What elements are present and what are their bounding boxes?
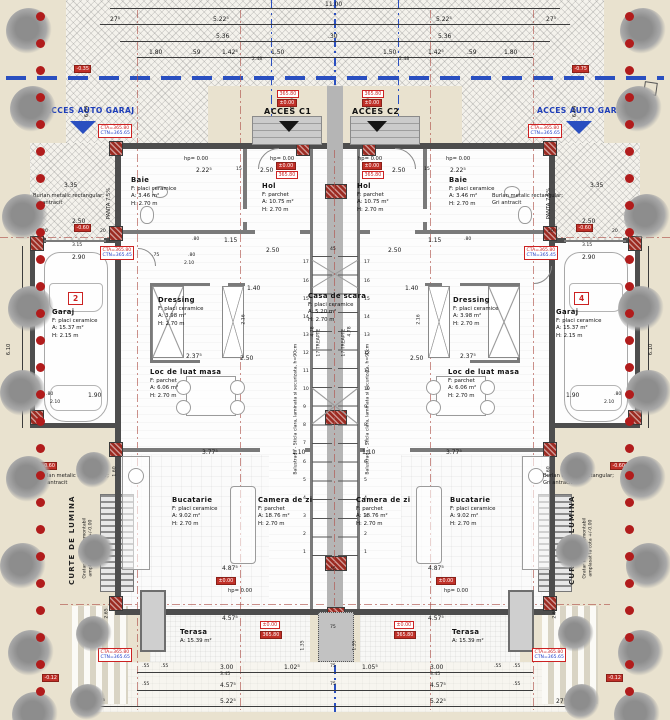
room-name: Baie bbox=[449, 176, 494, 186]
room-area: A: 6.06 m² bbox=[150, 385, 221, 393]
dim-label: 3.45 bbox=[220, 673, 230, 678]
dim-label: 27⁵ bbox=[110, 17, 120, 23]
cta-ctn-box: CTA=365.80 CTN=365.65 bbox=[528, 124, 562, 138]
bollard-dot bbox=[625, 282, 634, 291]
dim-label: 20 bbox=[612, 230, 618, 235]
dim-label: 4.87⁵ bbox=[428, 566, 444, 572]
bollard-dot bbox=[36, 93, 45, 102]
room-name: Casa de scara bbox=[308, 292, 366, 302]
dim-label: 2.10 bbox=[604, 401, 614, 406]
room-height: H: 2.70 m bbox=[450, 521, 495, 529]
room-name: Baie bbox=[131, 176, 176, 186]
dim-label: 2.50 bbox=[260, 168, 273, 174]
room-height: H: 2.70 m bbox=[131, 201, 176, 209]
dim-label: 4.57⁵ bbox=[428, 616, 444, 622]
room-label: Terasa A: 15.39 m² bbox=[180, 628, 212, 645]
tree-icon bbox=[8, 630, 54, 676]
partition bbox=[410, 448, 549, 452]
dim-label: .55 bbox=[513, 683, 520, 688]
dim-label: 2.16 bbox=[242, 314, 247, 324]
step-number: 12 bbox=[303, 352, 309, 357]
room-name: Garaj bbox=[52, 308, 97, 318]
dim-label: 17 TREAPTE bbox=[342, 329, 347, 357]
room-area: A: 15.37 m² bbox=[556, 325, 601, 333]
bollard-dot bbox=[36, 660, 45, 669]
chair bbox=[426, 380, 441, 395]
dim-label: CURTE DE LUMINA bbox=[69, 495, 76, 585]
room-name: Hol bbox=[357, 182, 389, 192]
tree-icon bbox=[6, 8, 52, 54]
unit-number: 2 bbox=[68, 292, 83, 305]
partition bbox=[360, 230, 370, 234]
elevation-box: 365.80 bbox=[276, 171, 298, 179]
dim-line bbox=[100, 706, 570, 707]
bollard-dot bbox=[625, 255, 634, 264]
dim-label: 3.45 bbox=[430, 673, 440, 678]
dim-label: 4.57⁵ bbox=[220, 683, 236, 689]
chair bbox=[176, 400, 191, 415]
bollard-dot bbox=[36, 120, 45, 129]
column bbox=[543, 442, 557, 457]
dim-label: 2.48 bbox=[399, 58, 409, 63]
dim-label: 1.90 bbox=[566, 393, 579, 399]
elevation-box: 365.80 bbox=[394, 631, 416, 639]
bollard-dot bbox=[625, 471, 634, 480]
elevation-box: ±0.00 bbox=[436, 577, 456, 585]
dim-line bbox=[120, 41, 550, 42]
room-area: A: 3.98 m² bbox=[158, 313, 203, 321]
room-floor-finish: F: parchet bbox=[357, 192, 389, 200]
dim-label: 15 bbox=[424, 168, 430, 173]
room-label: Bucatarie F: placi ceramice A: 9.02 m² H… bbox=[172, 496, 217, 528]
room-floor-finish: F: parchet bbox=[150, 378, 221, 386]
step-number: 4 bbox=[364, 497, 367, 502]
room-floor-finish: F: placi ceramice bbox=[52, 318, 97, 326]
bollard-dot bbox=[36, 309, 45, 318]
bollard-dot bbox=[36, 417, 45, 426]
dim-label: 1.90 bbox=[88, 393, 101, 399]
dim-label: hp= 0.00 bbox=[444, 589, 468, 594]
elevation-box: 365.80 bbox=[362, 171, 384, 179]
room-name: Terasa bbox=[180, 628, 212, 638]
bollard-dot bbox=[36, 174, 45, 183]
dim-line bbox=[137, 672, 533, 673]
bollard-dot bbox=[36, 363, 45, 372]
step-number: 13 bbox=[303, 334, 309, 339]
dim-label: 2.65 bbox=[105, 608, 110, 618]
dim-label: .55 bbox=[142, 665, 149, 670]
room-floor-finish: F: placi ceramice bbox=[158, 306, 203, 314]
dim-label: 3.00 bbox=[430, 665, 443, 671]
dim-label: 1.02⁵ bbox=[284, 665, 300, 671]
column bbox=[109, 226, 123, 241]
entry-steps-c1[interactable] bbox=[252, 116, 322, 145]
dim-label: 20 bbox=[548, 230, 554, 235]
dim-label: 1.42⁵ bbox=[222, 50, 238, 56]
room-label: Loc de luat masa F: parchet A: 6.06 m² H… bbox=[150, 368, 221, 400]
step-number: 1 bbox=[303, 551, 306, 556]
dim-label: 1.80 bbox=[504, 50, 517, 56]
dim-label: 4.87⁵ bbox=[222, 566, 238, 572]
step-number: 14 bbox=[364, 316, 370, 321]
step-number: 7 bbox=[364, 442, 367, 447]
room-area: A: 3.46 m² bbox=[131, 193, 176, 201]
room-floor-finish: F: parchet bbox=[262, 192, 294, 200]
dim-label: 3.77⁵ bbox=[202, 450, 218, 456]
dim-label: .75 bbox=[152, 254, 159, 259]
bollard-dot bbox=[36, 201, 45, 210]
room-floor-finish: F: parchet bbox=[448, 378, 519, 386]
partition bbox=[150, 360, 200, 363]
partition bbox=[243, 222, 247, 234]
dim-label: .55 bbox=[494, 665, 501, 670]
bollard-dot bbox=[625, 201, 634, 210]
elevation-box: ±0.00 bbox=[394, 621, 414, 629]
dim-label: 4.57⁵ bbox=[430, 683, 446, 689]
dim-label: 2.16 bbox=[417, 314, 422, 324]
elevation-box: 365.80 bbox=[277, 90, 299, 98]
garage-door-left[interactable] bbox=[44, 240, 106, 242]
tree-icon bbox=[76, 616, 112, 652]
room-height: H: 2.70 m bbox=[448, 393, 519, 401]
room-area: A: 10.75 m² bbox=[262, 199, 294, 207]
dim-label: 2.10 bbox=[50, 401, 60, 406]
bollard-dot bbox=[625, 120, 634, 129]
column bbox=[109, 442, 123, 457]
dim-label: 2.48 bbox=[252, 58, 262, 63]
dim-label: 20 bbox=[100, 230, 106, 235]
bollard-dot bbox=[36, 633, 45, 642]
dim-label: 3.35 bbox=[590, 183, 603, 189]
dim-label: .80 bbox=[192, 238, 199, 243]
partition bbox=[121, 230, 255, 234]
acces-auto-garaj-right-label: ACCES AUTO GARAJ bbox=[537, 106, 626, 115]
bollard-dot bbox=[36, 39, 45, 48]
dim-label: 2.50 bbox=[392, 168, 405, 174]
dim-label: 5.36 bbox=[216, 34, 229, 40]
elevation-box: -0.75 bbox=[572, 65, 589, 73]
room-floor-finish: F: parchet bbox=[258, 506, 313, 514]
step-number: 12 bbox=[364, 352, 370, 357]
elevation-box: ±0.00 bbox=[216, 577, 236, 585]
room-name: Dressing bbox=[453, 296, 498, 306]
dim-label: Gri antracit bbox=[492, 201, 521, 206]
room-label: Garaj F: placi ceramice A: 15.37 m² H: 2… bbox=[556, 308, 601, 340]
room-floor-finish: F: parchet bbox=[356, 506, 411, 514]
bollard-dot bbox=[36, 228, 45, 237]
dim-label: 11.00 bbox=[325, 2, 342, 8]
elevation-box: ±0.00 bbox=[362, 99, 382, 107]
dim-label: 3.15 bbox=[582, 244, 592, 249]
terrace-post bbox=[508, 590, 534, 652]
bollard-dot bbox=[36, 255, 45, 264]
room-name: Hol bbox=[262, 182, 294, 192]
chair bbox=[230, 380, 245, 395]
step-number: 10 bbox=[364, 388, 370, 393]
room-label: Casa de scara F: placi ceramice A: 5.20 … bbox=[308, 292, 366, 324]
bollard-dot bbox=[36, 498, 45, 507]
bollard-dot bbox=[625, 336, 634, 345]
terrace-post bbox=[140, 590, 166, 652]
dim-label: 2.10 bbox=[184, 262, 194, 267]
elevation-box: ±0.00 bbox=[260, 621, 280, 629]
bollard-dot bbox=[36, 147, 45, 156]
column bbox=[325, 556, 347, 571]
room-height: H: 2.70 m bbox=[453, 321, 498, 329]
dim-line bbox=[110, 8, 560, 9]
bollard-dot bbox=[625, 174, 634, 183]
stair-break-mark bbox=[312, 260, 358, 288]
room-label: Hol F: parchet A: 10.75 m² H: 2.70 m bbox=[357, 182, 389, 214]
partition bbox=[423, 222, 427, 234]
room-height: H: 2.70 m bbox=[172, 521, 217, 529]
dim-label: 6.64 bbox=[85, 106, 90, 118]
dim-label: hp= 0.00 bbox=[184, 157, 208, 162]
bollard-dot bbox=[36, 12, 45, 21]
dim-label: 1.35 bbox=[353, 640, 358, 650]
dim-label: 3.15 bbox=[72, 244, 82, 249]
room-label: Baie F: placi ceramice A: 3.46 m² H: 2.7… bbox=[131, 176, 176, 208]
room-label: Dressing F: placi ceramice A: 3.98 m² H:… bbox=[158, 296, 203, 328]
ctn-value: CTN=365.65 bbox=[531, 131, 560, 137]
room-area: A: 3.98 m² bbox=[453, 313, 498, 321]
partition bbox=[470, 360, 520, 363]
step-number: 15 bbox=[303, 298, 309, 303]
room-area: A: 9.02 m² bbox=[172, 513, 217, 521]
cta-ctn-box: CTA=365.80 CTN=365.45 bbox=[524, 246, 558, 260]
tree-icon bbox=[70, 684, 106, 720]
dim-label: 1.15 bbox=[428, 238, 441, 244]
step-number: 7 bbox=[303, 442, 306, 447]
ctn-value: CTN=365.65 bbox=[101, 655, 130, 661]
dim-label: hp= 0.00 bbox=[228, 589, 252, 594]
dim-label: 2.65 bbox=[553, 608, 558, 618]
dim-label: 2.50 bbox=[410, 356, 423, 362]
dim-label: .80 bbox=[464, 238, 471, 243]
tree-icon bbox=[560, 452, 596, 488]
step-number: 1 bbox=[364, 551, 367, 556]
room-floor-finish: F: placi ceramice bbox=[308, 302, 366, 310]
tree-icon bbox=[12, 692, 58, 720]
sofa-right bbox=[416, 486, 442, 564]
step-number: 2 bbox=[303, 533, 306, 538]
grid-axis bbox=[430, 10, 431, 710]
room-label: Loc de luat masa F: parchet A: 6.06 m² H… bbox=[448, 368, 519, 400]
room-label: Garaj F: placi ceramice A: 15.37 m² H: 2… bbox=[52, 308, 97, 340]
bollard-dot bbox=[625, 363, 634, 372]
tree-icon bbox=[76, 452, 112, 488]
partition bbox=[243, 149, 247, 209]
room-name: Bucatarie bbox=[450, 496, 495, 506]
dim-label: 2.90 bbox=[582, 255, 595, 261]
dim-label: 75 bbox=[330, 665, 336, 670]
elevation-box: -0.12 bbox=[42, 674, 59, 682]
room-area: A: 5.20 m² bbox=[308, 309, 366, 317]
room-floor-finish: F: placi ceramice bbox=[172, 506, 217, 514]
dim-label: Burlan metalic rectangular; bbox=[33, 194, 104, 199]
elevation-box: ±0.00 bbox=[276, 162, 296, 170]
dim-label: .59 bbox=[191, 50, 201, 56]
wall bbox=[115, 143, 121, 615]
chair bbox=[230, 400, 245, 415]
tree-icon bbox=[8, 286, 54, 332]
room-height: H: 2.70 m bbox=[262, 207, 294, 215]
dim-label: 5.22⁵ bbox=[436, 17, 452, 23]
step-number: 8 bbox=[303, 424, 306, 429]
step-number: 9 bbox=[364, 406, 367, 411]
dim-label: 4.78 bbox=[311, 326, 316, 336]
sink bbox=[528, 468, 544, 484]
step-number: 16 bbox=[303, 280, 309, 285]
garage-door-right[interactable] bbox=[564, 240, 626, 242]
room-name: Garaj bbox=[556, 308, 601, 318]
room-area: A: 10.75 m² bbox=[357, 199, 389, 207]
dim-label: Burlan metalic rectangular; bbox=[492, 194, 563, 199]
toilet bbox=[140, 206, 154, 224]
bollard-dot bbox=[625, 417, 634, 426]
partition bbox=[423, 149, 427, 209]
room-floor-finish: F: placi ceramice bbox=[556, 318, 601, 326]
dim-label: .80 bbox=[188, 254, 195, 259]
step-number: 6 bbox=[303, 461, 306, 466]
dim-label: 2.50 bbox=[388, 248, 401, 254]
chair bbox=[480, 400, 495, 415]
dim-label: .30 bbox=[328, 34, 338, 40]
cta-ctn-box: CTA=365.80 CTN=365.65 bbox=[98, 648, 132, 662]
dim-line bbox=[137, 57, 533, 58]
room-height: H: 2.15 m bbox=[556, 333, 601, 341]
room-height: H: 2.70 m bbox=[449, 201, 494, 209]
dim-label: 1.80 bbox=[149, 50, 162, 56]
chair bbox=[426, 400, 441, 415]
bollard-dot bbox=[625, 228, 634, 237]
acces-c2-label: ACCES C2 bbox=[352, 107, 399, 116]
room-area: A: 15.39 m² bbox=[452, 638, 484, 646]
step-number: 2 bbox=[364, 533, 367, 538]
bollard-dot bbox=[625, 606, 634, 615]
step-number: 17 bbox=[303, 261, 309, 266]
step-number: 10 bbox=[303, 388, 309, 393]
dim-label: 45 bbox=[330, 568, 336, 573]
step-number: 13 bbox=[364, 334, 370, 339]
room-height: H: 2.70 m bbox=[308, 317, 366, 325]
dim-label: 3.77⁵ bbox=[446, 450, 462, 456]
step-number: 15 bbox=[364, 298, 370, 303]
ctn-value: CTN=365.65 bbox=[101, 131, 130, 137]
entry-steps-c2[interactable] bbox=[350, 116, 420, 145]
room-name: Loc de luat masa bbox=[448, 368, 519, 378]
dim-label: 2.37⁵ bbox=[186, 354, 202, 360]
dim-label: 75 bbox=[330, 683, 336, 688]
room-label: Terasa A: 15.39 m² bbox=[452, 628, 484, 645]
dim-label: 45 bbox=[330, 248, 336, 253]
step-number: 5 bbox=[303, 479, 306, 484]
step-number: 17 bbox=[364, 261, 370, 266]
dim-label: 6.10 bbox=[7, 344, 12, 356]
bollard-dot bbox=[625, 525, 634, 534]
bollard-dot bbox=[36, 525, 45, 534]
sink bbox=[128, 468, 144, 484]
dim-label: Balustrada - Sticla clara, laminata si s… bbox=[366, 344, 371, 475]
dim-label: 17 TREAPTE bbox=[317, 329, 322, 357]
dim-label: 1.35 bbox=[301, 640, 306, 650]
room-label: Dressing F: placi ceramice A: 3.98 m² H:… bbox=[453, 296, 498, 328]
bollard-dot bbox=[625, 444, 634, 453]
room-name: Dressing bbox=[158, 296, 203, 306]
tree-icon bbox=[564, 684, 600, 720]
elevation-box: ±0.00 bbox=[362, 162, 382, 170]
bollard-dot bbox=[625, 12, 634, 21]
room-floor-finish: F: placi ceramice bbox=[449, 186, 494, 194]
bollard-dot bbox=[625, 579, 634, 588]
cta-ctn-box: CTA=365.80 CTN=365.45 bbox=[100, 246, 134, 260]
tree-icon bbox=[6, 456, 52, 502]
step-number: 3 bbox=[364, 515, 367, 520]
room-area: A: 6.06 m² bbox=[448, 385, 519, 393]
dim-label: 3.00 bbox=[220, 665, 233, 671]
column bbox=[109, 141, 123, 156]
room-height: H: 2.70 m bbox=[150, 393, 221, 401]
column bbox=[325, 184, 347, 199]
room-label: Bucatarie F: placi ceramice A: 9.02 m² H… bbox=[450, 496, 495, 528]
dim-label: 5.22⁵ bbox=[430, 699, 446, 705]
stair-axis bbox=[334, 150, 335, 655]
step-number: 3 bbox=[303, 515, 306, 520]
bollard-dot bbox=[36, 66, 45, 75]
dim-label: 1.50 bbox=[383, 50, 396, 56]
room-floor-finish: F: placi ceramice bbox=[450, 506, 495, 514]
stair-break-mark bbox=[312, 388, 358, 424]
step-number: 11 bbox=[364, 370, 370, 375]
dim-label: 5.22⁵ bbox=[213, 17, 229, 23]
dim-label: 1.15 bbox=[224, 238, 237, 244]
room-area: A: 15.39 m² bbox=[180, 638, 212, 646]
ctn-value: CTN=365.65 bbox=[535, 655, 564, 661]
dim-label: 5.36 bbox=[438, 34, 451, 40]
ctn-value: CTN=365.45 bbox=[103, 253, 132, 259]
bollard-dot bbox=[36, 579, 45, 588]
elevation-box: -0.60 bbox=[74, 224, 91, 232]
bollard-dot bbox=[625, 309, 634, 318]
bollard-dot bbox=[36, 444, 45, 453]
dim-label: 4.57⁵ bbox=[222, 616, 238, 622]
bollard-dot bbox=[36, 471, 45, 480]
dim-label: 1.40 bbox=[247, 286, 260, 292]
column bbox=[543, 141, 557, 156]
elevation-box: -0.35 bbox=[74, 65, 91, 73]
dim-label: 2.22⁵ bbox=[450, 168, 466, 174]
room-label: Hol F: parchet A: 10.75 m² H: 2.70 m bbox=[262, 182, 294, 214]
dim-label: .80 bbox=[46, 393, 53, 398]
dim-label: Balustrada - Sticla clara, laminata si s… bbox=[294, 344, 299, 475]
unit-number: 4 bbox=[574, 292, 589, 305]
partition bbox=[121, 448, 260, 452]
dim-label: .55 bbox=[142, 683, 149, 688]
dim-label: 1.60 bbox=[113, 466, 118, 476]
bollard-dot bbox=[625, 147, 634, 156]
wardrobe bbox=[428, 286, 450, 358]
dim-label: .55 bbox=[161, 665, 168, 670]
room-area: A: 3.46 m² bbox=[449, 193, 494, 201]
elevation-box: 365.80 bbox=[260, 631, 282, 639]
bollard-dot bbox=[625, 660, 634, 669]
room-name: Bucatarie bbox=[172, 496, 217, 506]
bollard-dot bbox=[625, 390, 634, 399]
room-height: H: 2.70 m bbox=[356, 521, 411, 529]
bollard-dot bbox=[36, 336, 45, 345]
bollard-dot bbox=[36, 552, 45, 561]
bollard-dot bbox=[36, 606, 45, 615]
